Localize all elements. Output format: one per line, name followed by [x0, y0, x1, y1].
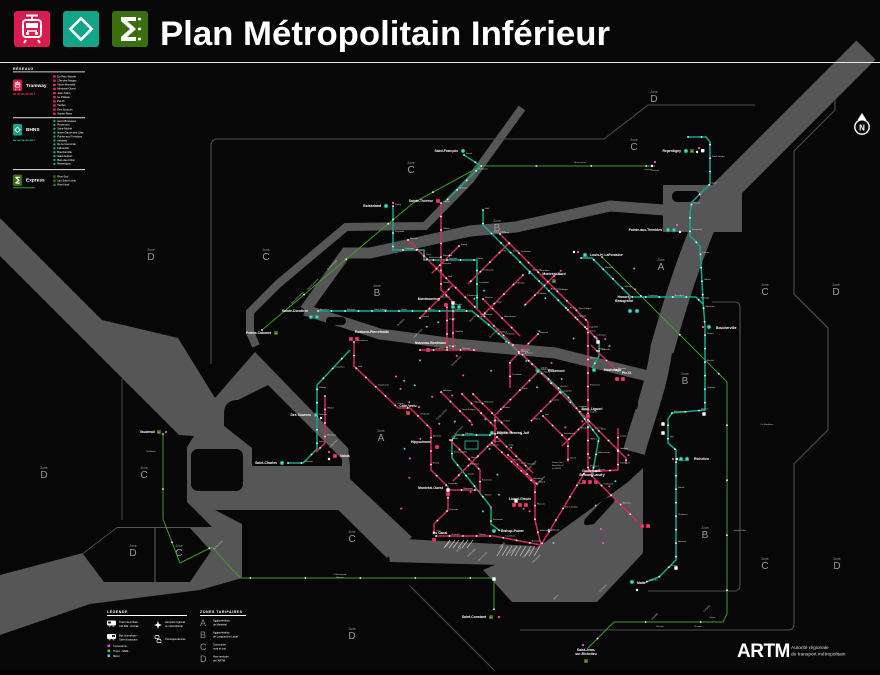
- svg-text:de transport métropolitain: de transport métropolitain: [791, 652, 846, 658]
- svg-text:nord et sud: nord et sud: [213, 647, 227, 651]
- svg-text:B: B: [702, 530, 709, 541]
- svg-text:Gounod: Gounod: [449, 258, 458, 260]
- svg-text:Laurier: Laurier: [553, 398, 560, 401]
- svg-text:Richelieu: Richelieu: [694, 457, 709, 461]
- svg-text:Villeray: Villeray: [319, 386, 327, 389]
- svg-text:Holt: Holt: [485, 207, 489, 210]
- svg-text:Mozart: Mozart: [590, 356, 597, 359]
- svg-text:Chevrier: Chevrier: [694, 625, 703, 628]
- svg-text:Fleury: Fleury: [599, 348, 606, 351]
- svg-text:Trams - REM -: Trams - REM -: [113, 649, 130, 653]
- svg-text:de Longueuil et Laval: de Longueuil et Laval: [213, 635, 238, 639]
- svg-text:Villeray: Villeray: [502, 231, 510, 234]
- svg-text:Rachel: Rachel: [707, 360, 714, 362]
- svg-text:Legendre: Legendre: [578, 314, 588, 317]
- svg-text:Masson: Masson: [701, 408, 709, 410]
- svg-text:Hôpital Général Juif: Hôpital Général Juif: [497, 431, 530, 435]
- svg-text:Ahuntsic: Ahuntsic: [678, 540, 687, 543]
- svg-text:Villeray: Villeray: [624, 285, 632, 288]
- svg-text:Sauvé: Sauvé: [678, 487, 685, 489]
- svg-text:Bélanger: Bélanger: [465, 432, 474, 435]
- svg-text:Laurier: Laurier: [520, 461, 527, 464]
- svg-text:Castelnau: Castelnau: [512, 373, 523, 376]
- svg-text:Laurier: Laurier: [443, 200, 450, 203]
- svg-text:ou international: ou international: [165, 624, 183, 628]
- svg-text:D: D: [129, 548, 136, 559]
- svg-text:Des Sources: Des Sources: [57, 107, 73, 111]
- svg-text:Boucherville: Boucherville: [57, 150, 72, 154]
- svg-text:Villeray: Villeray: [479, 533, 487, 536]
- svg-text:Montmorency: Montmorency: [418, 297, 440, 301]
- svg-text:Legendre: Legendre: [589, 326, 599, 329]
- svg-text:D: D: [650, 94, 657, 105]
- svg-text:Fleury: Fleury: [395, 203, 402, 206]
- svg-text:Marianne: Marianne: [464, 487, 474, 490]
- svg-text:Holt: Holt: [502, 249, 506, 252]
- svg-text:Masson: Masson: [463, 348, 471, 350]
- svg-text:Lac-Saint-Louis: Lac-Saint-Louis: [57, 179, 76, 183]
- svg-text:Castelnau: Castelnau: [335, 365, 346, 368]
- svg-text:Montréal-Nord: Montréal-Nord: [542, 272, 565, 276]
- svg-text:Fairmount: Fairmount: [482, 478, 492, 481]
- svg-text:Saint-Zotique: Saint-Zotique: [454, 450, 468, 453]
- svg-text:Beaubien: Beaubien: [581, 427, 591, 429]
- svg-text:Correspondances: Correspondances: [165, 637, 186, 641]
- svg-text:Crémazie: Crémazie: [516, 281, 526, 284]
- svg-text:Rive-Nord: Rive-Nord: [57, 183, 70, 187]
- svg-text:Hors territoire: Hors territoire: [213, 655, 229, 659]
- svg-text:Bélanger: Bélanger: [701, 297, 710, 300]
- svg-text:Calixa: Calixa: [709, 617, 716, 619]
- svg-text:C: C: [262, 252, 269, 263]
- svg-text:BHNS: BHNS: [26, 127, 40, 133]
- svg-text:Holt: Holt: [545, 413, 549, 416]
- svg-text:Saint-Constant: Saint-Constant: [462, 615, 487, 619]
- svg-text:D: D: [147, 252, 154, 263]
- svg-text:Bélanger: Bélanger: [470, 462, 479, 465]
- svg-text:D: D: [200, 654, 207, 664]
- svg-text:Fleury: Fleury: [570, 307, 577, 310]
- svg-text:Villeray: Villeray: [474, 400, 482, 403]
- svg-text:Holt: Holt: [358, 365, 362, 368]
- svg-text:D: D: [40, 470, 47, 481]
- svg-text:Pointe-aux-Trembles: Pointe-aux-Trembles: [57, 134, 82, 138]
- svg-text:Saint-Zotique: Saint-Zotique: [374, 308, 388, 311]
- svg-text:Sainte-Dorothée: Sainte-Dorothée: [282, 309, 308, 313]
- svg-text:Hippodrome: Hippodrome: [411, 440, 431, 444]
- svg-text:De la Concorde: De la Concorde: [57, 142, 76, 146]
- svg-text:Côte-Vertu: Côte-Vertu: [399, 404, 416, 408]
- svg-text:Dandurand: Dandurand: [378, 384, 390, 387]
- svg-text:Lionel-Groulx: Lionel-Groulx: [509, 497, 531, 501]
- svg-text:Castelnau: Castelnau: [521, 250, 532, 253]
- svg-text:Legendre: Legendre: [448, 482, 458, 485]
- svg-text:ARTM: ARTM: [737, 641, 790, 662]
- svg-text:Marianne: Marianne: [443, 254, 453, 257]
- svg-text:Gauthier: Gauthier: [455, 330, 464, 333]
- svg-text:C: C: [630, 142, 637, 153]
- svg-text:Marianne: Marianne: [706, 305, 716, 308]
- svg-text:Du Parc-Nicolet: Du Parc-Nicolet: [57, 74, 76, 78]
- svg-text:Castelnau: Castelnau: [479, 281, 490, 284]
- svg-text:Dandurand: Dandurand: [482, 268, 494, 271]
- svg-text:Montréal-Ouest: Montréal-Ouest: [418, 486, 444, 490]
- svg-text:De Montbrun: De Montbrun: [761, 423, 774, 426]
- svg-text:Rachel: Rachel: [561, 386, 568, 388]
- svg-text:Bus interurbain -: Bus interurbain -: [119, 634, 138, 638]
- svg-text:Vaudreuil: Vaudreuil: [140, 430, 155, 434]
- svg-text:Fairmount: Fairmount: [493, 518, 503, 521]
- svg-text:Repentigny: Repentigny: [57, 162, 71, 166]
- svg-text:Chabanel: Chabanel: [506, 333, 516, 335]
- svg-text:Gounod: Gounod: [605, 267, 614, 269]
- svg-text:Duluth: Duluth: [504, 419, 511, 422]
- svg-text:Louis-H. LaFontaine: Louis-H. LaFontaine: [590, 253, 623, 257]
- svg-text:Duluth: Duluth: [494, 440, 501, 443]
- svg-text:Dante: Dante: [590, 329, 597, 332]
- svg-text:de l'ARTM: de l'ARTM: [213, 659, 225, 663]
- svg-text:Bernard Landry: Bernard Landry: [579, 473, 604, 477]
- svg-text:de Montréal: de Montréal: [213, 623, 227, 627]
- svg-text:D: D: [348, 631, 355, 642]
- svg-text:Fleury: Fleury: [671, 564, 678, 567]
- svg-text:Gounod: Gounod: [319, 414, 328, 416]
- svg-text:Crémazie: Crémazie: [449, 508, 459, 511]
- svg-text:Autorité régionale: Autorité régionale: [791, 645, 829, 651]
- svg-text:D: D: [832, 287, 839, 298]
- svg-text:Pointe-aux-Trembles: Pointe-aux-Trembles: [629, 228, 662, 232]
- svg-text:Sainte-Thérèse: Sainte-Thérèse: [409, 199, 433, 203]
- svg-text:Saint-Charles: Saint-Charles: [255, 461, 277, 465]
- svg-text:N: N: [859, 124, 865, 133]
- svg-text:Crémazie: Crémazie: [597, 333, 607, 336]
- svg-text:Chabanel: Chabanel: [604, 483, 614, 485]
- svg-text:Plan Métropolitain Inférieur: Plan Métropolitain Inférieur: [160, 15, 610, 53]
- svg-text:Gare d'autocars: Gare d'autocars: [119, 638, 138, 642]
- svg-text:Mozart: Mozart: [428, 308, 435, 311]
- svg-text:C: C: [200, 642, 207, 652]
- svg-text:RÉSEAUX: RÉSEAUX: [13, 66, 34, 71]
- svg-text:Bélanger: Bélanger: [551, 528, 560, 531]
- svg-text:Bellechasse: Bellechasse: [540, 530, 553, 532]
- svg-text:ZONES TARIFAIRES: ZONES TARIFAIRES: [200, 610, 243, 614]
- svg-text:Bélanger: Bélanger: [443, 389, 452, 392]
- svg-text:Duluth: Duluth: [449, 317, 456, 320]
- svg-text:Chabanel: Chabanel: [478, 169, 488, 171]
- svg-text:Boul. Liguori: Boul. Liguori: [582, 407, 603, 411]
- svg-text:Mascouche: Mascouche: [574, 162, 586, 164]
- svg-text:Verdun: Verdun: [57, 103, 66, 107]
- svg-text:Bélanger: Bélanger: [347, 308, 356, 311]
- svg-text:Châteauguay: Châteauguay: [333, 573, 347, 576]
- svg-text:Gilford: Gilford: [533, 417, 540, 420]
- svg-text:Beaubien: Beaubien: [490, 444, 500, 446]
- svg-text:Rachel: Rachel: [422, 316, 429, 318]
- svg-text:Legendre: Legendre: [563, 390, 573, 393]
- svg-text:Gounod: Gounod: [540, 332, 549, 334]
- svg-text:C: C: [140, 470, 147, 481]
- svg-text:Gounod: Gounod: [620, 448, 629, 450]
- svg-text:Marianne: Marianne: [485, 400, 495, 403]
- svg-text:Repentigny: Repentigny: [663, 149, 682, 153]
- svg-text:Saint-Zotique: Saint-Zotique: [578, 307, 592, 310]
- svg-text:Castelnau: Castelnau: [505, 535, 516, 538]
- svg-text:A: A: [658, 262, 665, 273]
- svg-text:VIA Rail - Amtrak: VIA Rail - Amtrak: [119, 624, 139, 628]
- svg-text:Sauvé: Sauvé: [513, 250, 520, 252]
- svg-text:A: A: [378, 433, 385, 444]
- svg-text:sur-Richelieu: sur-Richelieu: [575, 652, 596, 656]
- svg-text:Aéroport régional: Aéroport régional: [165, 620, 185, 624]
- svg-text:Fairmount: Fairmount: [590, 383, 600, 386]
- svg-text:Gilford: Gilford: [327, 406, 334, 409]
- svg-text:Connexions -: Connexions -: [113, 644, 128, 648]
- svg-text:Dante: Dante: [401, 308, 408, 311]
- svg-text:Hochelaga: Hochelaga: [604, 368, 621, 372]
- svg-text:Gilford: Gilford: [704, 278, 711, 281]
- svg-text:Castelnau: Castelnau: [648, 294, 659, 297]
- svg-text:Gauthier: Gauthier: [441, 296, 450, 299]
- svg-text:B: B: [682, 376, 689, 387]
- svg-text:Fabreville: Fabreville: [57, 146, 69, 150]
- svg-text:C: C: [761, 561, 768, 572]
- svg-text:D: D: [833, 561, 840, 572]
- svg-text:Chabanel: Chabanel: [537, 293, 547, 295]
- svg-text:Du Canal: Du Canal: [433, 531, 448, 535]
- svg-text:Boisbriand: Boisbriand: [363, 204, 381, 208]
- svg-text:Henri-Bourassa: Henri-Bourassa: [57, 119, 76, 123]
- svg-text:Marianne: Marianne: [327, 433, 337, 436]
- svg-text:Boucherville: Boucherville: [716, 326, 736, 330]
- svg-text:Saint-François: Saint-François: [434, 149, 458, 153]
- svg-text:Sauvé: Sauvé: [570, 457, 577, 459]
- svg-text:Matte: Matte: [637, 581, 646, 585]
- svg-text:Ahuntsic: Ahuntsic: [433, 434, 442, 437]
- svg-text:Tramway: Tramway: [26, 83, 47, 89]
- svg-text:Bellechasse: Bellechasse: [504, 316, 517, 318]
- svg-text:B: B: [200, 630, 206, 640]
- svg-text:L'Île-des-Neiges: L'Île-des-Neiges: [57, 78, 77, 82]
- svg-text:Jean-Talon: Jean-Talon: [57, 91, 71, 95]
- svg-text:Holt: Holt: [670, 436, 674, 439]
- svg-text:Ahuntsic: Ahuntsic: [459, 187, 468, 190]
- svg-text:Notre-Dame-des-Lilas: Notre-Dame-des-Lilas: [57, 131, 84, 135]
- svg-text:Agglomération: Agglomération: [213, 619, 230, 623]
- svg-text:Train interurbain -: Train interurbain -: [119, 620, 140, 624]
- svg-text:Île-Bizard: Île-Bizard: [145, 450, 156, 453]
- svg-text:Bélanger: Bélanger: [559, 288, 568, 291]
- svg-text:A: A: [200, 618, 206, 628]
- svg-text:Chabanel: Chabanel: [420, 414, 430, 416]
- svg-text:Legendre: Legendre: [649, 579, 659, 582]
- svg-text:Nouveau-Bordeaux: Nouveau-Bordeaux: [415, 341, 446, 345]
- svg-text:Pointe-Calumet: Pointe-Calumet: [246, 331, 272, 335]
- svg-text:Mozart: Mozart: [485, 494, 492, 497]
- svg-text:Saint-Zotique: Saint-Zotique: [712, 155, 726, 158]
- svg-text:Sainte-Julie: Sainte-Julie: [734, 529, 746, 532]
- svg-text:Le Plateau: Le Plateau: [57, 95, 70, 99]
- svg-text:Rosemont: Rosemont: [57, 123, 70, 127]
- svg-text:C: C: [348, 534, 355, 545]
- svg-text:Legendre: Legendre: [395, 230, 405, 233]
- svg-text:Villeray: Villeray: [476, 257, 484, 260]
- svg-text:Kirkland: Kirkland: [57, 138, 67, 142]
- svg-text:Gauthier: Gauthier: [707, 386, 716, 389]
- svg-text:Crémazie: Crémazie: [405, 247, 415, 250]
- svg-text:Agglomération: Agglomération: [213, 631, 230, 635]
- svg-text:Pie-IX: Pie-IX: [57, 99, 65, 103]
- svg-text:Dante: Dante: [711, 182, 718, 185]
- svg-text:du REGM: du REGM: [552, 468, 561, 470]
- svg-text:Duluth: Duluth: [443, 281, 450, 284]
- svg-text:Valois: Valois: [340, 454, 350, 458]
- svg-text:Holt: Holt: [448, 275, 452, 278]
- svg-text:Rive-Sud: Rive-Sud: [57, 174, 69, 178]
- svg-text:Ahuntsic: Ahuntsic: [623, 501, 632, 504]
- svg-text:Fairmount: Fairmount: [692, 228, 702, 231]
- svg-text:Saint-Michel: Saint-Michel: [57, 127, 72, 131]
- svg-text:Dante: Dante: [522, 387, 529, 390]
- svg-text:Saint-Hubert: Saint-Hubert: [57, 154, 72, 158]
- svg-text:Masson: Masson: [485, 297, 493, 299]
- svg-text:Gounod: Gounod: [452, 534, 461, 536]
- svg-text:Gilford: Gilford: [590, 437, 597, 440]
- svg-text:Sauvé: Sauvé: [486, 314, 493, 316]
- svg-text:Des Sources: Des Sources: [290, 413, 311, 417]
- svg-text:Bellechasse: Bellechasse: [598, 452, 611, 454]
- svg-text:Legendre: Legendre: [442, 262, 452, 265]
- svg-text:B: B: [374, 288, 381, 299]
- svg-text:Castelnau: Castelnau: [493, 419, 504, 422]
- svg-text:C: C: [761, 287, 768, 298]
- svg-text:Masson: Masson: [537, 503, 545, 505]
- svg-text:Chabanel: Chabanel: [678, 514, 688, 516]
- svg-text:Mozart: Mozart: [471, 456, 478, 459]
- svg-text:Sauvé: Sauvé: [466, 153, 473, 155]
- svg-text:Beaubien: Beaubien: [675, 295, 685, 297]
- svg-text:Rosemont: Rosemont: [548, 369, 565, 373]
- svg-text:Bellechasse: Bellechasse: [674, 411, 687, 413]
- svg-text:Fleury: Fleury: [433, 461, 440, 464]
- svg-text:Gilford: Gilford: [443, 227, 450, 230]
- svg-text:Rachel: Rachel: [449, 345, 456, 347]
- svg-text:C: C: [407, 165, 414, 176]
- svg-text:Couronnes: Couronnes: [213, 643, 226, 647]
- svg-text:Dandurand: Dandurand: [467, 294, 479, 297]
- svg-text:Bellechasse: Bellechasse: [429, 257, 442, 259]
- svg-text:Mozart: Mozart: [694, 201, 701, 204]
- svg-text:Vieux-Montréal: Vieux-Montréal: [57, 83, 75, 87]
- svg-text:Marie-Mercè/: Marie-Mercè/: [552, 465, 564, 467]
- svg-text:Beaubien: Beaubien: [532, 541, 542, 543]
- svg-text:Saint-Zotique: Saint-Zotique: [565, 505, 579, 508]
- svg-text:Duluth: Duluth: [707, 332, 714, 335]
- svg-text:Fleury: Fleury: [461, 243, 468, 246]
- svg-text:Marianne: Marianne: [590, 464, 600, 467]
- svg-text:Mozart: Mozart: [503, 406, 510, 409]
- svg-text:Crémazie: Crémazie: [304, 460, 314, 463]
- svg-text:Saint-Zotique: Saint-Zotique: [462, 408, 476, 411]
- svg-text:Mercier: Mercier: [336, 576, 344, 579]
- svg-text:Lanoraie: Lanoraie: [651, 169, 660, 172]
- svg-text:Bishop-Power: Bishop-Power: [501, 529, 524, 533]
- svg-text:LÉGENDE: LÉGENDE: [107, 609, 128, 614]
- svg-text:Fairmount: Fairmount: [620, 461, 630, 464]
- svg-text:Beaugrand: Beaugrand: [615, 299, 633, 303]
- svg-text:Masson: Masson: [410, 238, 418, 240]
- svg-text:Sainte-Cath./: Sainte-Cath./: [552, 461, 564, 464]
- svg-text:Beaubien: Beaubien: [320, 309, 330, 311]
- svg-text:Hervieu: Hervieu: [656, 625, 664, 628]
- svg-text:Rachel: Rachel: [514, 459, 521, 461]
- svg-text:Express: Express: [26, 178, 45, 184]
- svg-text:Roxboro-Pierrefonds: Roxboro-Pierrefonds: [355, 330, 389, 334]
- svg-text:Dandurand: Dandurand: [564, 432, 576, 435]
- svg-text:Bois-des-Filion: Bois-des-Filion: [57, 158, 75, 162]
- svg-text:Gauthier: Gauthier: [436, 347, 445, 350]
- svg-text:Dante: Dante: [468, 473, 475, 476]
- svg-text:Laurier: Laurier: [703, 251, 710, 254]
- svg-text:Villeray: Villeray: [521, 350, 529, 353]
- svg-text:Montréal-Ouest: Montréal-Ouest: [57, 87, 76, 91]
- svg-text:Pie-IX: Pie-IX: [622, 371, 632, 375]
- svg-text:Sainte-Rose: Sainte-Rose: [57, 112, 72, 116]
- svg-text:Métro: Métro: [113, 654, 120, 658]
- svg-text:Laurier: Laurier: [620, 434, 627, 437]
